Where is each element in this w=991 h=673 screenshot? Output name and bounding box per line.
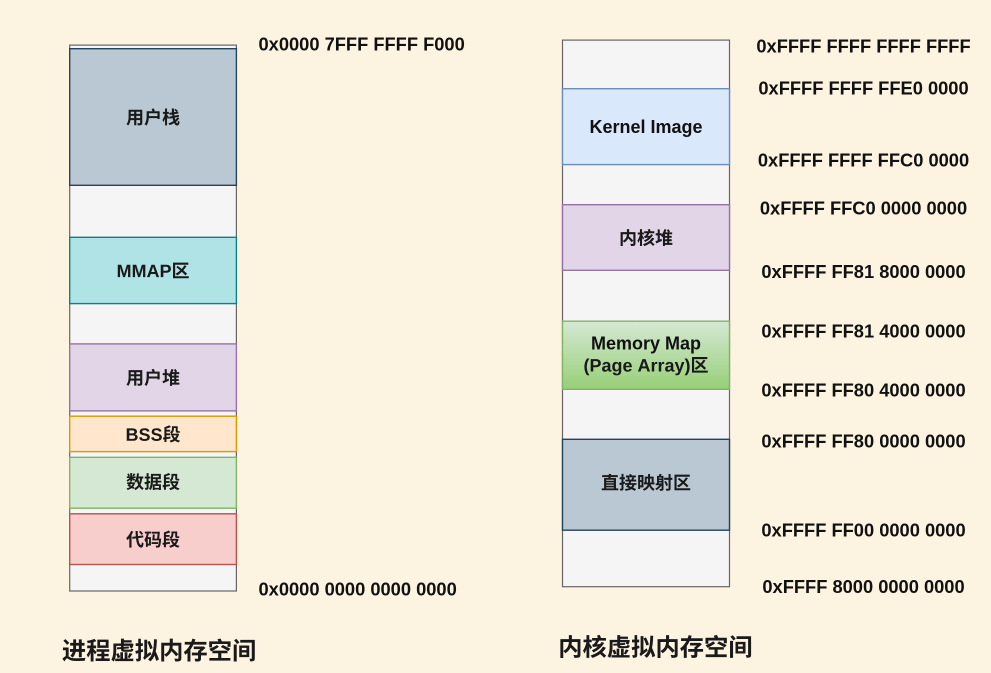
svg-text:0xFFFF FF81 4000 0000: 0xFFFF FF81 4000 0000 — [761, 320, 965, 341]
svg-text:0xFFFF FFFF FFC0 0000: 0xFFFF FFFF FFC0 0000 — [758, 149, 969, 170]
svg-text:0xFFFF FF81 8000 0000: 0xFFFF FF81 8000 0000 — [761, 261, 965, 282]
svg-text:0xFFFF 8000 0000 0000: 0xFFFF 8000 0000 0000 — [762, 576, 964, 597]
svg-text:Kernel Image: Kernel Image — [589, 117, 702, 137]
svg-text:0xFFFF FF80 4000 0000: 0xFFFF FF80 4000 0000 — [761, 379, 965, 400]
svg-text:0x0000 0000 0000 0000: 0x0000 0000 0000 0000 — [259, 578, 457, 599]
svg-text:0xFFFF FFC0 0000 0000: 0xFFFF FFC0 0000 0000 — [760, 197, 967, 218]
svg-text:0x0000 7FFF FFFF F000: 0x0000 7FFF FFFF F000 — [259, 33, 465, 54]
svg-text:Memory Map: Memory Map — [591, 334, 701, 354]
svg-text:0xFFFF FF80 0000 0000: 0xFFFF FF80 0000 0000 — [761, 430, 965, 451]
svg-text:0xFFFF FFFF FFFF FFFF: 0xFFFF FFFF FFFF FFFF — [756, 35, 970, 56]
svg-text:0xFFFF FF00 0000 0000: 0xFFFF FF00 0000 0000 — [761, 519, 965, 540]
svg-text:0xFFFF FFFF FFE0 0000: 0xFFFF FFFF FFE0 0000 — [758, 77, 968, 98]
